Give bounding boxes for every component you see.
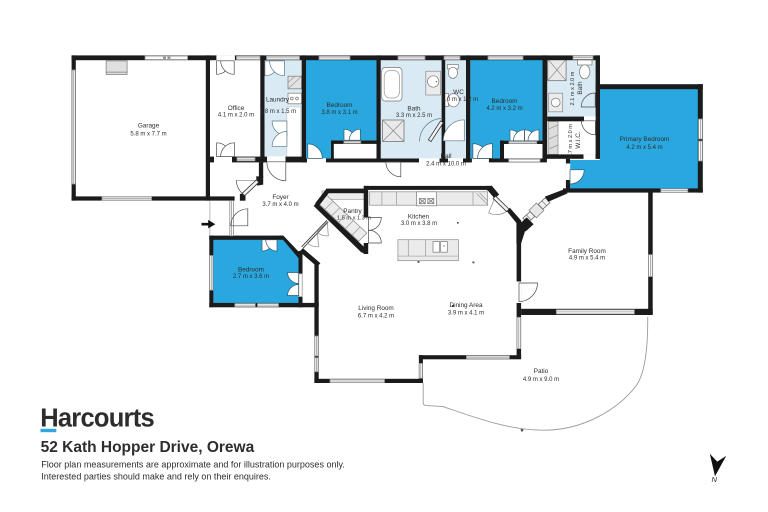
svg-text:Foyer: Foyer (272, 194, 289, 201)
svg-text:6.7 m x 4.2 m: 6.7 m x 4.2 m (358, 314, 394, 320)
svg-text:Primary Bedroom: Primary Bedroom (620, 136, 670, 143)
svg-text:Bath: Bath (577, 81, 584, 95)
svg-text:1.7 m x 2.0 m: 1.7 m x 2.0 m (568, 124, 574, 158)
svg-text:4.2 m x 5.4 m: 4.2 m x 5.4 m (626, 145, 662, 151)
svg-text:WC: WC (453, 89, 464, 96)
svg-text:Bedroom: Bedroom (238, 267, 264, 274)
svg-text:Interested parties should make: Interested parties should make and rely … (41, 471, 271, 481)
svg-text:Bath: Bath (407, 105, 421, 112)
svg-text:3.8 m x 3.1 m: 3.8 m x 3.1 m (321, 110, 357, 116)
svg-text:W.I.C.: W.I.C. (575, 131, 582, 149)
svg-text:3.3 m x 2.5 m: 3.3 m x 2.5 m (396, 113, 432, 119)
svg-text:52 Kath Hopper Drive, Orewa: 52 Kath Hopper Drive, Orewa (41, 439, 255, 456)
svg-text:Floor plan measurements are ap: Floor plan measurements are approximate … (41, 459, 345, 469)
svg-text:Living Room: Living Room (358, 305, 394, 312)
svg-text:Laundry: Laundry (266, 96, 290, 103)
svg-text:1.5 m x 1.3 m: 1.5 m x 1.3 m (337, 216, 371, 222)
svg-text:Bedroom: Bedroom (327, 102, 353, 109)
svg-text:2.0 m x 1.2 m: 2.0 m x 1.2 m (442, 97, 478, 103)
svg-text:Hall: Hall (440, 153, 451, 160)
svg-text:4.2 m x 3.2 m: 4.2 m x 3.2 m (486, 106, 522, 112)
svg-text:Patio: Patio (534, 368, 549, 375)
svg-text:Dining Area: Dining Area (449, 302, 482, 309)
svg-text:2.4 m x 10.0 m: 2.4 m x 10.0 m (426, 162, 466, 168)
svg-text:3.9 m x 4.1 m: 3.9 m x 4.1 m (448, 311, 484, 317)
svg-text:Kitchen: Kitchen (408, 213, 430, 220)
svg-text:4.9 m x 5.4 m: 4.9 m x 5.4 m (569, 256, 605, 262)
svg-text:Bedroom: Bedroom (492, 98, 518, 105)
svg-text:Harcourts: Harcourts (40, 405, 154, 433)
svg-text:2.7 m x 3.6 m: 2.7 m x 3.6 m (233, 274, 269, 280)
svg-text:N: N (712, 475, 718, 484)
svg-text:4.9 m x 9.0 m: 4.9 m x 9.0 m (523, 377, 559, 383)
svg-text:5.8 m x 7.7 m: 5.8 m x 7.7 m (130, 132, 166, 138)
svg-text:3.7 m x 4.0 m: 3.7 m x 4.0 m (262, 202, 298, 208)
svg-text:Pantry: Pantry (343, 208, 362, 215)
svg-text:3.0 m x 3.8 m: 3.0 m x 3.8 m (401, 221, 437, 227)
svg-text:1.8 m x 1.5 m: 1.8 m x 1.5 m (260, 109, 296, 115)
svg-text:4.1 m x 2.0 m: 4.1 m x 2.0 m (218, 113, 254, 119)
svg-text:Garage: Garage (138, 123, 160, 130)
svg-text:2.1 m x 2.0 m: 2.1 m x 2.0 m (570, 71, 576, 105)
svg-text:Office: Office (228, 105, 245, 112)
svg-text:Family Room: Family Room (568, 248, 606, 255)
